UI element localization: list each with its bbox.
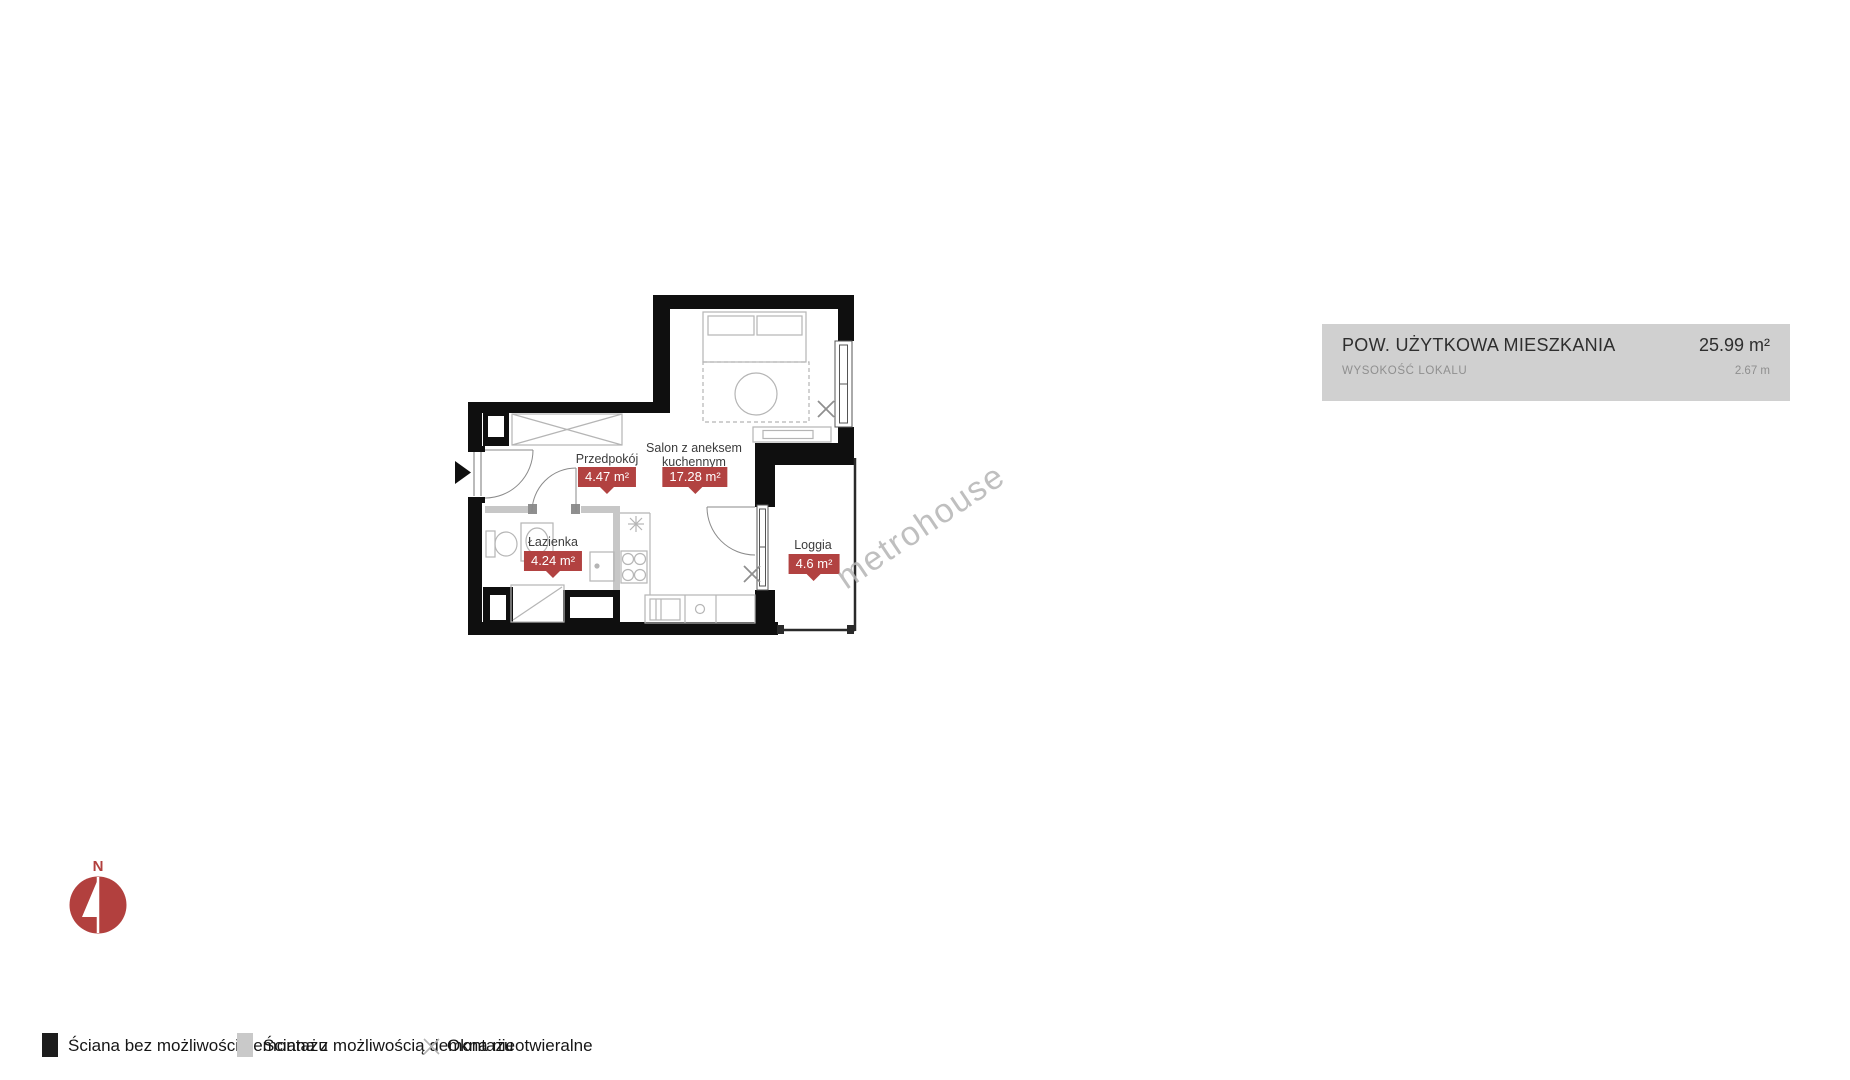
ceiling-height-value: 2.67 m <box>1735 365 1770 377</box>
sideboard-icon <box>753 427 831 442</box>
entrance-arrow-icon <box>455 461 471 484</box>
balcony-door-icon <box>757 505 768 590</box>
legend-removable-wall-icon <box>237 1033 253 1057</box>
kitchen-vent-icon <box>628 516 644 532</box>
room-label-loggia: Loggia <box>794 538 832 552</box>
compass-north-label: N <box>93 858 104 875</box>
rug-icon <box>703 362 809 422</box>
room-label-lazienka: Łazienka <box>528 535 578 549</box>
legend-fixed-window-label: Okna nieotwieralne <box>447 1036 593 1056</box>
legend-solid-wall-icon <box>42 1033 58 1057</box>
room-label-salon-line1: Salon z aneksem <box>646 441 742 455</box>
area-tag-lazienka: 4.24 m² <box>524 551 582 571</box>
room-label-przedpokoj: Przedpokój <box>576 452 639 466</box>
kitchen-bottom-units-icon <box>645 595 755 623</box>
toilet-icon <box>486 531 517 557</box>
summary-panel: POW. UŻYTKOWA MIESZKANIA 25.99 m² WYSOKO… <box>1322 324 1790 401</box>
usable-area-value: 25.99 m² <box>1699 335 1770 356</box>
sofa-icon <box>703 312 806 362</box>
shower-icon <box>511 585 564 622</box>
area-tag-przedpokoj: 4.47 m² <box>578 467 636 487</box>
washing-machine-icon <box>590 552 614 581</box>
legend-fixed-window-icon <box>423 1038 440 1055</box>
usable-area-label: POW. UŻYTKOWA MIESZKANIA <box>1342 335 1616 356</box>
ceiling-height-label: WYSOKOŚĆ LOKALU <box>1342 365 1467 377</box>
entrance-door-frame <box>474 452 481 496</box>
floorplan-page: Przedpokój 4.47 m² Salon z aneksem kuche… <box>0 0 1850 1080</box>
wardrobe-icon <box>512 414 622 445</box>
table-icon <box>735 373 777 415</box>
area-tag-salon: 17.28 m² <box>662 467 727 487</box>
compass: N <box>66 858 130 938</box>
room-label-salon: Salon z aneksem kuchennym <box>646 441 742 469</box>
window-right-icon <box>835 341 852 427</box>
